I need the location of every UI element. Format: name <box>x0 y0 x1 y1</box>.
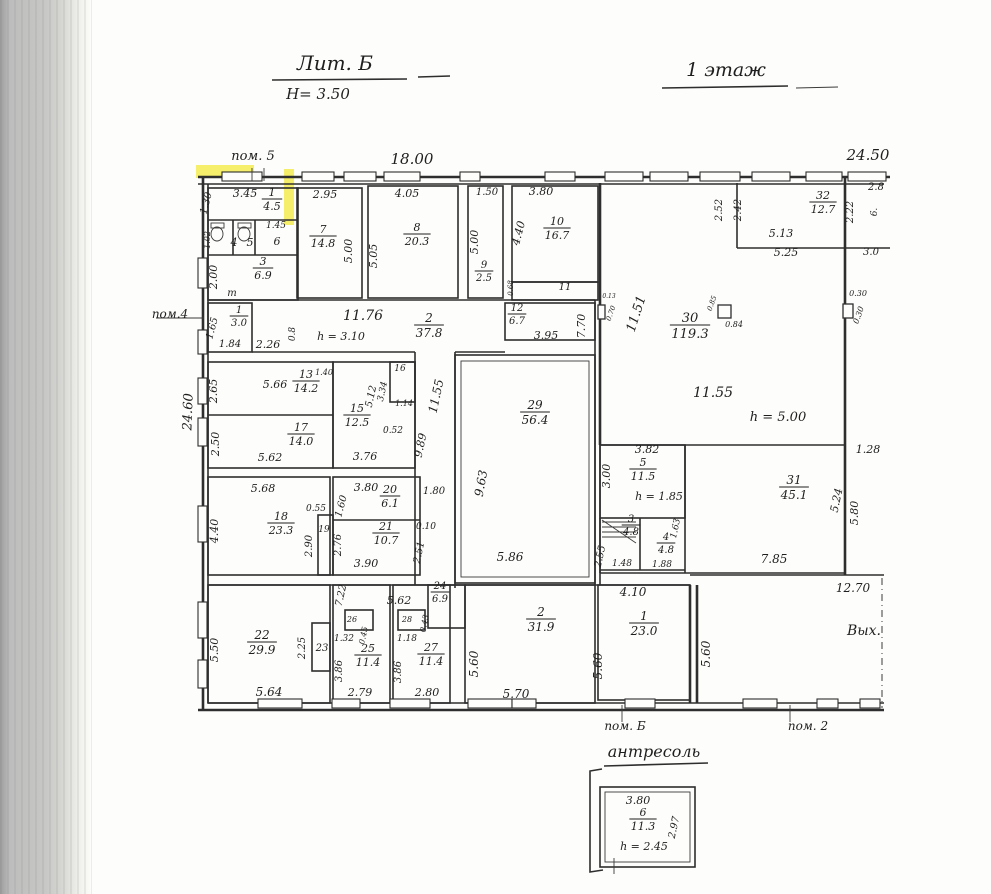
plan-label-group: 1.18 <box>397 634 417 644</box>
plan-label: 5.60 <box>467 650 481 677</box>
plan-label: 5 <box>640 456 647 469</box>
plan-label: 2 <box>536 605 545 619</box>
plan-label: 2.97 <box>667 815 683 841</box>
plan-label: 5.62 <box>387 594 412 607</box>
plan-label-group: 9.63 <box>472 469 490 498</box>
plan-label-group: пом.4 <box>152 307 188 321</box>
plan-label-group: 0.68 <box>507 280 515 296</box>
plan-label: 2.42 <box>733 199 744 222</box>
plan-label-group: 5.68 <box>251 482 276 495</box>
plan-label-group: 2.25 <box>297 637 308 660</box>
plan-label-group: 11.51 <box>624 294 650 334</box>
plan-label-group: 237.8 <box>414 311 444 340</box>
plan-label-group: 1.60 <box>333 494 350 519</box>
plan-label-group: 5.24 <box>828 487 846 514</box>
plan-label: 1.14 <box>395 399 413 408</box>
plan-label: 1 <box>640 609 648 623</box>
plan-label: h = 3.10 <box>317 330 365 343</box>
plan-label-group: 1.50 <box>476 187 499 198</box>
plan-label: 20.3 <box>404 235 430 248</box>
plan-label: 4.5 <box>262 200 281 213</box>
plan-label: 31.9 <box>528 620 555 634</box>
plan-label-group: пом. 5 <box>231 149 275 164</box>
plan-label-group: 1.40 <box>315 368 333 377</box>
plan-label: 5.66 <box>263 378 288 391</box>
plan-label-group: 26 <box>346 615 357 624</box>
plan-label-group: 3.0 <box>863 247 880 258</box>
plan-label: 7.22 <box>334 583 349 607</box>
plan-label-group: 2.76 <box>333 533 344 557</box>
plan-label-group: 3212.7 <box>809 189 836 216</box>
plan-label: 3.76 <box>353 450 378 463</box>
plan-label: 6.9 <box>254 269 272 282</box>
plan-label: h = 5.00 <box>750 410 806 425</box>
plan-label: 5.24 <box>828 487 846 514</box>
plan-label: 31 <box>786 473 801 487</box>
plan-label: 7 <box>320 223 327 236</box>
plan-label-group: 11.76 <box>343 308 383 324</box>
plan-label-group: 2.26 <box>255 338 281 351</box>
plan-label: 6 <box>274 235 281 248</box>
plan-label: 2.52 <box>714 199 725 222</box>
plan-label-group: 11.55 <box>693 385 733 401</box>
plan-label: 3.95 <box>534 329 559 342</box>
plan-label-group: 3.86 <box>334 659 345 682</box>
plan-label-group: 0.85 <box>706 294 719 312</box>
plan-label-group: 1.84 <box>219 339 241 350</box>
plan-label-group: 2511.4 <box>354 642 381 669</box>
plan-label: 0.8 <box>288 327 298 342</box>
plan-label: 17 <box>294 421 308 434</box>
plan-label: 12.5 <box>345 416 370 429</box>
building-height: Н= 3.50 <box>285 85 350 103</box>
plan-label: 0.55 <box>306 504 326 514</box>
plan-label: 24.60 <box>180 393 196 432</box>
plan-label: 1.50 <box>476 187 499 198</box>
plan-label: 0.85 <box>706 294 719 312</box>
plan-label: 12.7 <box>811 203 836 216</box>
plan-label: пом.4 <box>152 307 188 321</box>
plan-label-group: 16 <box>394 364 406 374</box>
plan-label: 1.28 <box>856 443 881 456</box>
plan-label: 0.10 <box>416 522 436 532</box>
plan-label: 2.95 <box>312 188 338 201</box>
plan-label-group: 23 <box>315 643 329 654</box>
plan-label: 6.7 <box>509 316 526 327</box>
plan-label: 119.3 <box>671 327 708 342</box>
plan-label-group: 1.02 <box>203 231 212 249</box>
plan-label-group: 5.86 <box>497 550 524 564</box>
plan-label: 9 <box>481 260 488 271</box>
plan-label: 11 <box>559 282 572 293</box>
plan-label-group: 0.30 <box>849 289 867 298</box>
plan-label-group: 4.10 <box>619 585 647 599</box>
plan-label: 20 <box>382 483 397 496</box>
plan-label: 3.80 <box>354 481 379 494</box>
plan-label: 56.4 <box>522 413 549 427</box>
plan-label-group: h = 3.10 <box>317 330 365 343</box>
plan-label-group: 511.5 <box>629 456 656 483</box>
plan-label: 12 <box>511 303 524 314</box>
plan-label-group: 3.80 <box>529 185 554 198</box>
plan-label-group: 1.63 <box>669 517 683 539</box>
plan-label: 1.02 <box>203 231 212 249</box>
plan-label-group: 1714.0 <box>287 421 314 448</box>
plan-label-group: 820.3 <box>403 221 430 248</box>
plan-label: 15 <box>350 402 364 415</box>
plan-label-group: 28 <box>401 615 412 624</box>
plan-label: 2.79 <box>347 686 373 699</box>
plan-label-group: 2.97 <box>667 815 683 841</box>
plan-label: 3.90 <box>354 557 379 570</box>
plan-label-group: 18.00 <box>391 150 434 168</box>
plan-label: 29 <box>526 398 543 412</box>
column-marker <box>718 305 731 318</box>
plan-label: 2.5 <box>475 273 492 284</box>
plan-label: 24.50 <box>846 146 890 164</box>
plan-label: 2.25 <box>297 637 308 660</box>
plan-label-group: 30119.3 <box>670 311 710 342</box>
plan-label-group: 4.05 <box>394 187 420 200</box>
plan-label: 4.8 <box>622 527 639 538</box>
plan-label: 18.00 <box>391 150 434 168</box>
plan-label-group: 36.9 <box>253 255 273 282</box>
plan-label: 6. <box>870 208 880 217</box>
plan-label: 29.9 <box>248 643 276 657</box>
plan-label: 5.68 <box>251 482 276 495</box>
plan-label-group: 4 <box>230 236 238 249</box>
plan-label: 2.65 <box>207 379 220 405</box>
plan-label-group: 5.64 <box>256 685 283 699</box>
plan-label: 5.50 <box>208 638 221 663</box>
plan-label-group: 123.0 <box>629 609 659 638</box>
plan-label: 21 <box>378 520 393 533</box>
plan-label: 3 <box>628 514 634 525</box>
plan-label: 19 <box>318 525 330 535</box>
plan-label: 6.1 <box>381 497 399 510</box>
plan-label: 23 <box>315 643 329 654</box>
plan-label-group: 4.40 <box>208 519 221 545</box>
plan-label-group: 611.3 <box>629 806 656 833</box>
plan-label: т <box>227 288 236 299</box>
plan-label: 23.3 <box>268 524 294 537</box>
plan-label-group: 2.65 <box>207 379 220 405</box>
plan-label: 1.88 <box>652 560 672 570</box>
plan-label-group: 5.00 <box>342 239 355 264</box>
plan-label-group: 24.60 <box>180 393 196 432</box>
plan-label: 11.4 <box>419 655 444 668</box>
plan-label-group: пом. Б <box>604 719 646 733</box>
plan-label-group: пом. 2 <box>788 719 828 733</box>
plan-label: 11.3 <box>631 820 656 833</box>
plan-label: 3.45 <box>233 187 258 200</box>
column-marker <box>598 305 605 319</box>
plan-label: 32 <box>816 189 830 202</box>
plan-label: 1.32 <box>334 634 354 644</box>
plan-label-group: 2.79 <box>347 686 373 699</box>
plan-label: 1.60 <box>333 494 350 519</box>
plan-label: 14.2 <box>294 382 319 395</box>
plan-label-group: 3.82 <box>635 443 660 456</box>
plan-label: пом. Б <box>604 719 646 733</box>
plan-label-group: 3.45 <box>233 187 258 200</box>
plan-label: 0.84 <box>725 320 743 329</box>
plan-label: 5.62 <box>258 451 283 464</box>
plan-label-group: 5.25 <box>774 246 799 259</box>
plan-label: 0.30 <box>849 289 867 298</box>
plan-label: 2.50 <box>209 432 222 458</box>
plan-label-group: 1.65 <box>204 316 220 340</box>
plan-label-group: 5.13 <box>769 227 794 240</box>
plan-label: 5.13 <box>769 227 794 240</box>
plan-label-group: 0.52 <box>383 426 403 436</box>
plan-label: 5.60 <box>591 652 605 679</box>
column-marker <box>843 304 853 318</box>
plan-label-group: 5.05 <box>367 244 380 269</box>
plan-label-group: 2.8 <box>867 182 884 193</box>
plan-label: 2.76 <box>333 533 344 557</box>
plan-label-group: 19 <box>318 525 330 535</box>
plan-label: 16.7 <box>545 229 570 242</box>
plan-label-group: 0.70 <box>605 304 618 322</box>
plan-label: 6 <box>640 806 647 819</box>
plan-label: 3.86 <box>334 659 345 682</box>
plan-label-group: 5.62 <box>258 451 283 464</box>
plan-label: 12.70 <box>836 581 871 595</box>
plan-label: 1 <box>269 186 276 199</box>
plan-label: 11.76 <box>343 308 383 324</box>
plan-label-group: 5.60 <box>467 650 481 677</box>
plan-label: 4.05 <box>394 187 420 200</box>
plan-label: 25 <box>360 642 375 655</box>
plan-label: 1.65 <box>204 316 220 340</box>
plan-label: 4.8 <box>657 545 674 556</box>
plan-label: 5 <box>247 236 254 249</box>
plan-labels: пом. 518.0024.501.303.4514.51.02451.4563… <box>152 146 890 853</box>
plan-label: 11.55 <box>426 378 447 415</box>
plan-label-group: 6 <box>274 235 281 248</box>
plan-label: 2.8 <box>867 182 884 193</box>
plan-label-group: 3.95 <box>534 329 559 342</box>
plan-label: 1.40 <box>315 368 333 377</box>
plan-label-group: 0.43 <box>418 614 431 633</box>
plan-label: 22 <box>253 628 269 642</box>
plan-label: 23.0 <box>630 624 658 638</box>
plan-label: 11.51 <box>624 294 650 334</box>
plan-label-group: 2110.7 <box>372 520 399 547</box>
plan-label: 26 <box>346 615 357 624</box>
plan-label-group: 1823.3 <box>267 510 294 537</box>
plan-label-group: 2.00 <box>207 265 220 291</box>
plan-label-group: 2956.4 <box>520 398 550 427</box>
plan-label-group: 0.55 <box>306 504 326 514</box>
plan-label: 1.18 <box>397 634 417 644</box>
plan-label-group: 11 <box>559 282 572 293</box>
plan-label: 3.00 <box>600 464 613 489</box>
plan-label: 13 <box>299 368 313 381</box>
plan-label-group: 5.62 <box>387 594 412 607</box>
plan-label: 2.00 <box>207 265 220 291</box>
plan-label-group: 231.9 <box>526 605 556 634</box>
floor-plan-scan: Лит. Б Н= 3.50 1 этаж антресоль <box>0 0 991 894</box>
plan-label-group: 3.90 <box>354 557 379 570</box>
plan-label-group: 5.50 <box>208 638 221 663</box>
plan-label-group: 1.88 <box>652 560 672 570</box>
plan-label: 1 <box>236 305 242 316</box>
plan-label-group: 2.50 <box>209 432 222 458</box>
plan-label: 3.80 <box>529 185 554 198</box>
plan-label: 3.0 <box>231 318 248 329</box>
plan-label-group: 14.5 <box>262 186 282 213</box>
plan-label: 14.0 <box>289 435 314 448</box>
plan-label-group: 3.86 <box>393 660 404 683</box>
floor-plan-svg: Лит. Б Н= 3.50 1 этаж антресоль <box>0 0 991 894</box>
plan-label: 0.70 <box>605 304 618 322</box>
plan-label: 8 <box>414 221 421 234</box>
plan-label: 2.80 <box>414 686 440 699</box>
plan-label-group: 3.80 <box>626 794 651 807</box>
plan-label-group: Вых. <box>846 623 881 639</box>
plan-label: 5.80 <box>848 501 861 526</box>
plan-label-group: 1.48 <box>612 559 632 569</box>
plan-label: 4.40 <box>208 519 221 545</box>
plan-label: 11.4 <box>356 656 381 669</box>
plan-label-group: 1.14 <box>395 399 413 408</box>
plan-label-group: 2.51 <box>412 540 428 565</box>
plan-label: пом. 5 <box>231 149 275 164</box>
plan-label: 7.70 <box>575 314 588 339</box>
plan-label: 4 <box>230 236 238 249</box>
plan-label: 5.00 <box>468 230 481 255</box>
toilet-icon <box>211 223 224 241</box>
plan-label-group: 92.5 <box>475 260 494 284</box>
plan-label: 18 <box>274 510 288 523</box>
plan-label-group: 5.66 <box>263 378 288 391</box>
plan-label-group: 5.70 <box>503 687 530 701</box>
plan-label-group: 2.95 <box>312 188 338 201</box>
plan-label-group: 11.55 <box>426 378 447 415</box>
plan-label-group: 3.00 <box>600 464 613 489</box>
plan-label: 3.82 <box>635 443 660 456</box>
plan-label: 14.8 <box>311 237 336 250</box>
plan-label: 9.63 <box>472 469 490 498</box>
plan-label-group: 2.90 <box>304 534 315 558</box>
plan-label: 3.0 <box>863 247 880 258</box>
plan-label-group: 24.50 <box>846 146 890 164</box>
plan-label: 2 <box>424 311 433 325</box>
plan-label: 3 <box>260 255 267 268</box>
plan-label: 5.86 <box>497 550 524 564</box>
plan-label: 5.70 <box>503 687 530 701</box>
plan-label: 0.13 <box>602 293 616 300</box>
plan-label-group: 7.22 <box>334 583 349 607</box>
plan-label: 11.55 <box>693 385 733 401</box>
plan-label-group: 0.13 <box>602 293 616 300</box>
plan-label: 10 <box>550 215 564 228</box>
plan-label-group: 2711.4 <box>417 641 444 668</box>
plan-label-group: 1.45 <box>266 221 286 231</box>
plan-label: 37.8 <box>416 326 443 340</box>
plan-label-group: 5.80 <box>848 501 861 526</box>
plan-label: 1.45 <box>266 221 286 231</box>
plan-label-group: 5 <box>247 236 254 249</box>
plan-label-group: 0.10 <box>416 522 436 532</box>
plan-label: 0.52 <box>383 426 403 436</box>
plan-label: 2.22 <box>845 201 856 224</box>
plan-label: 10.7 <box>374 534 399 547</box>
plan-label-group: h = 5.00 <box>750 410 806 425</box>
plan-label-group: 6. <box>870 208 880 217</box>
plan-label-group: 5.60 <box>699 640 713 667</box>
plan-label: 45.1 <box>780 488 808 502</box>
plan-label: 3.86 <box>393 660 404 683</box>
plan-label-group: h = 2.45 <box>620 840 668 853</box>
plan-label-group: 2.22 <box>845 201 856 224</box>
plan-label: 0.68 <box>507 280 515 296</box>
plan-label-group: 126.7 <box>508 303 527 327</box>
plan-label: 3.34 <box>376 380 390 402</box>
plan-label-group: 5.00 <box>468 230 481 255</box>
plan-label: 1.84 <box>219 339 241 350</box>
plan-label-group: 12.70 <box>836 581 871 595</box>
plan-label: 5.25 <box>774 246 799 259</box>
building-title: Лит. Б <box>296 51 373 75</box>
plan-label-group: 0.84 <box>725 320 743 329</box>
plan-label: 7.85 <box>761 552 788 566</box>
plan-label: 24 <box>433 581 447 592</box>
plan-label: 11.5 <box>631 470 656 483</box>
plan-label: 5.05 <box>367 244 380 269</box>
plan-label: 2.26 <box>255 338 281 351</box>
plan-label: h = 1.85 <box>635 490 683 503</box>
plan-label-group: 1.80 <box>423 486 446 497</box>
plan-label-group: т <box>227 288 236 299</box>
plan-label: 16 <box>394 364 406 374</box>
plan-label: 5.64 <box>256 685 283 699</box>
plan-label: 1.80 <box>423 486 446 497</box>
plan-label: 6.9 <box>432 594 449 605</box>
plan-label: 5.60 <box>699 640 713 667</box>
plan-label-group: 3.34 <box>376 380 390 402</box>
plan-label: 28 <box>401 615 412 624</box>
plan-label: h = 2.45 <box>620 840 668 853</box>
plan-label-group: 714.8 <box>309 223 336 250</box>
plan-label: Вых. <box>846 623 881 639</box>
plan-label-group: 13.0 <box>230 305 249 329</box>
plan-label-group: 2.80 <box>414 686 440 699</box>
plan-label: 27 <box>423 641 438 654</box>
plan-label: пом. 2 <box>788 719 828 733</box>
plan-label-group: 2229.9 <box>247 628 277 657</box>
plan-label-group: 206.1 <box>380 483 400 510</box>
plan-label-group: 5.60 <box>591 652 605 679</box>
plan-label-group: 3.80 <box>354 481 379 494</box>
plan-label-group: 7.70 <box>575 314 588 339</box>
plan-label: 1.63 <box>669 517 683 539</box>
plan-label-group: 7.85 <box>761 552 788 566</box>
plan-label-group: 2.52 <box>714 199 725 222</box>
plan-label: 1.30 <box>198 191 215 216</box>
plan-label: 30 <box>682 311 699 326</box>
plan-label-group: 1.32 <box>334 634 354 644</box>
plan-label-group: 1.28 <box>856 443 881 456</box>
plan-label-group: 3145.1 <box>779 473 809 502</box>
plan-label: 1.48 <box>612 559 632 569</box>
plan-label-group: 3.76 <box>353 450 378 463</box>
plan-label-group: 0.8 <box>288 327 298 342</box>
plan-label-group: h = 1.85 <box>635 490 683 503</box>
plan-label-group: 2.42 <box>733 199 744 222</box>
